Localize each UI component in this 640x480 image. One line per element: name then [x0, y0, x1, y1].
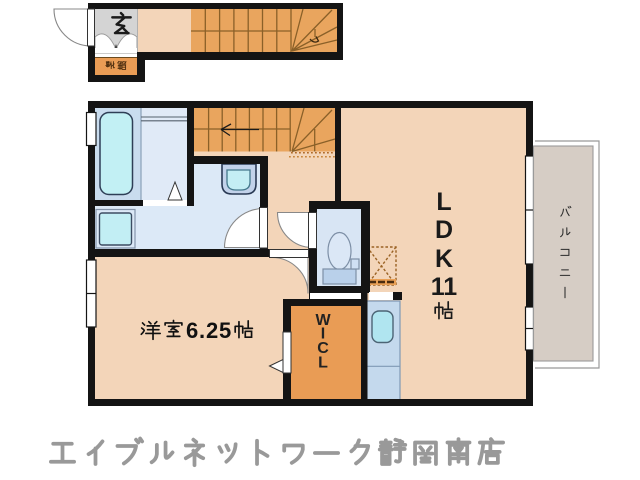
- svg-text:L: L: [318, 355, 328, 372]
- svg-text:K: K: [435, 245, 453, 273]
- svg-text:6.25: 6.25: [186, 318, 232, 343]
- svg-text:L: L: [436, 188, 451, 216]
- svg-text:11: 11: [431, 273, 458, 301]
- svg-text:D: D: [435, 216, 453, 244]
